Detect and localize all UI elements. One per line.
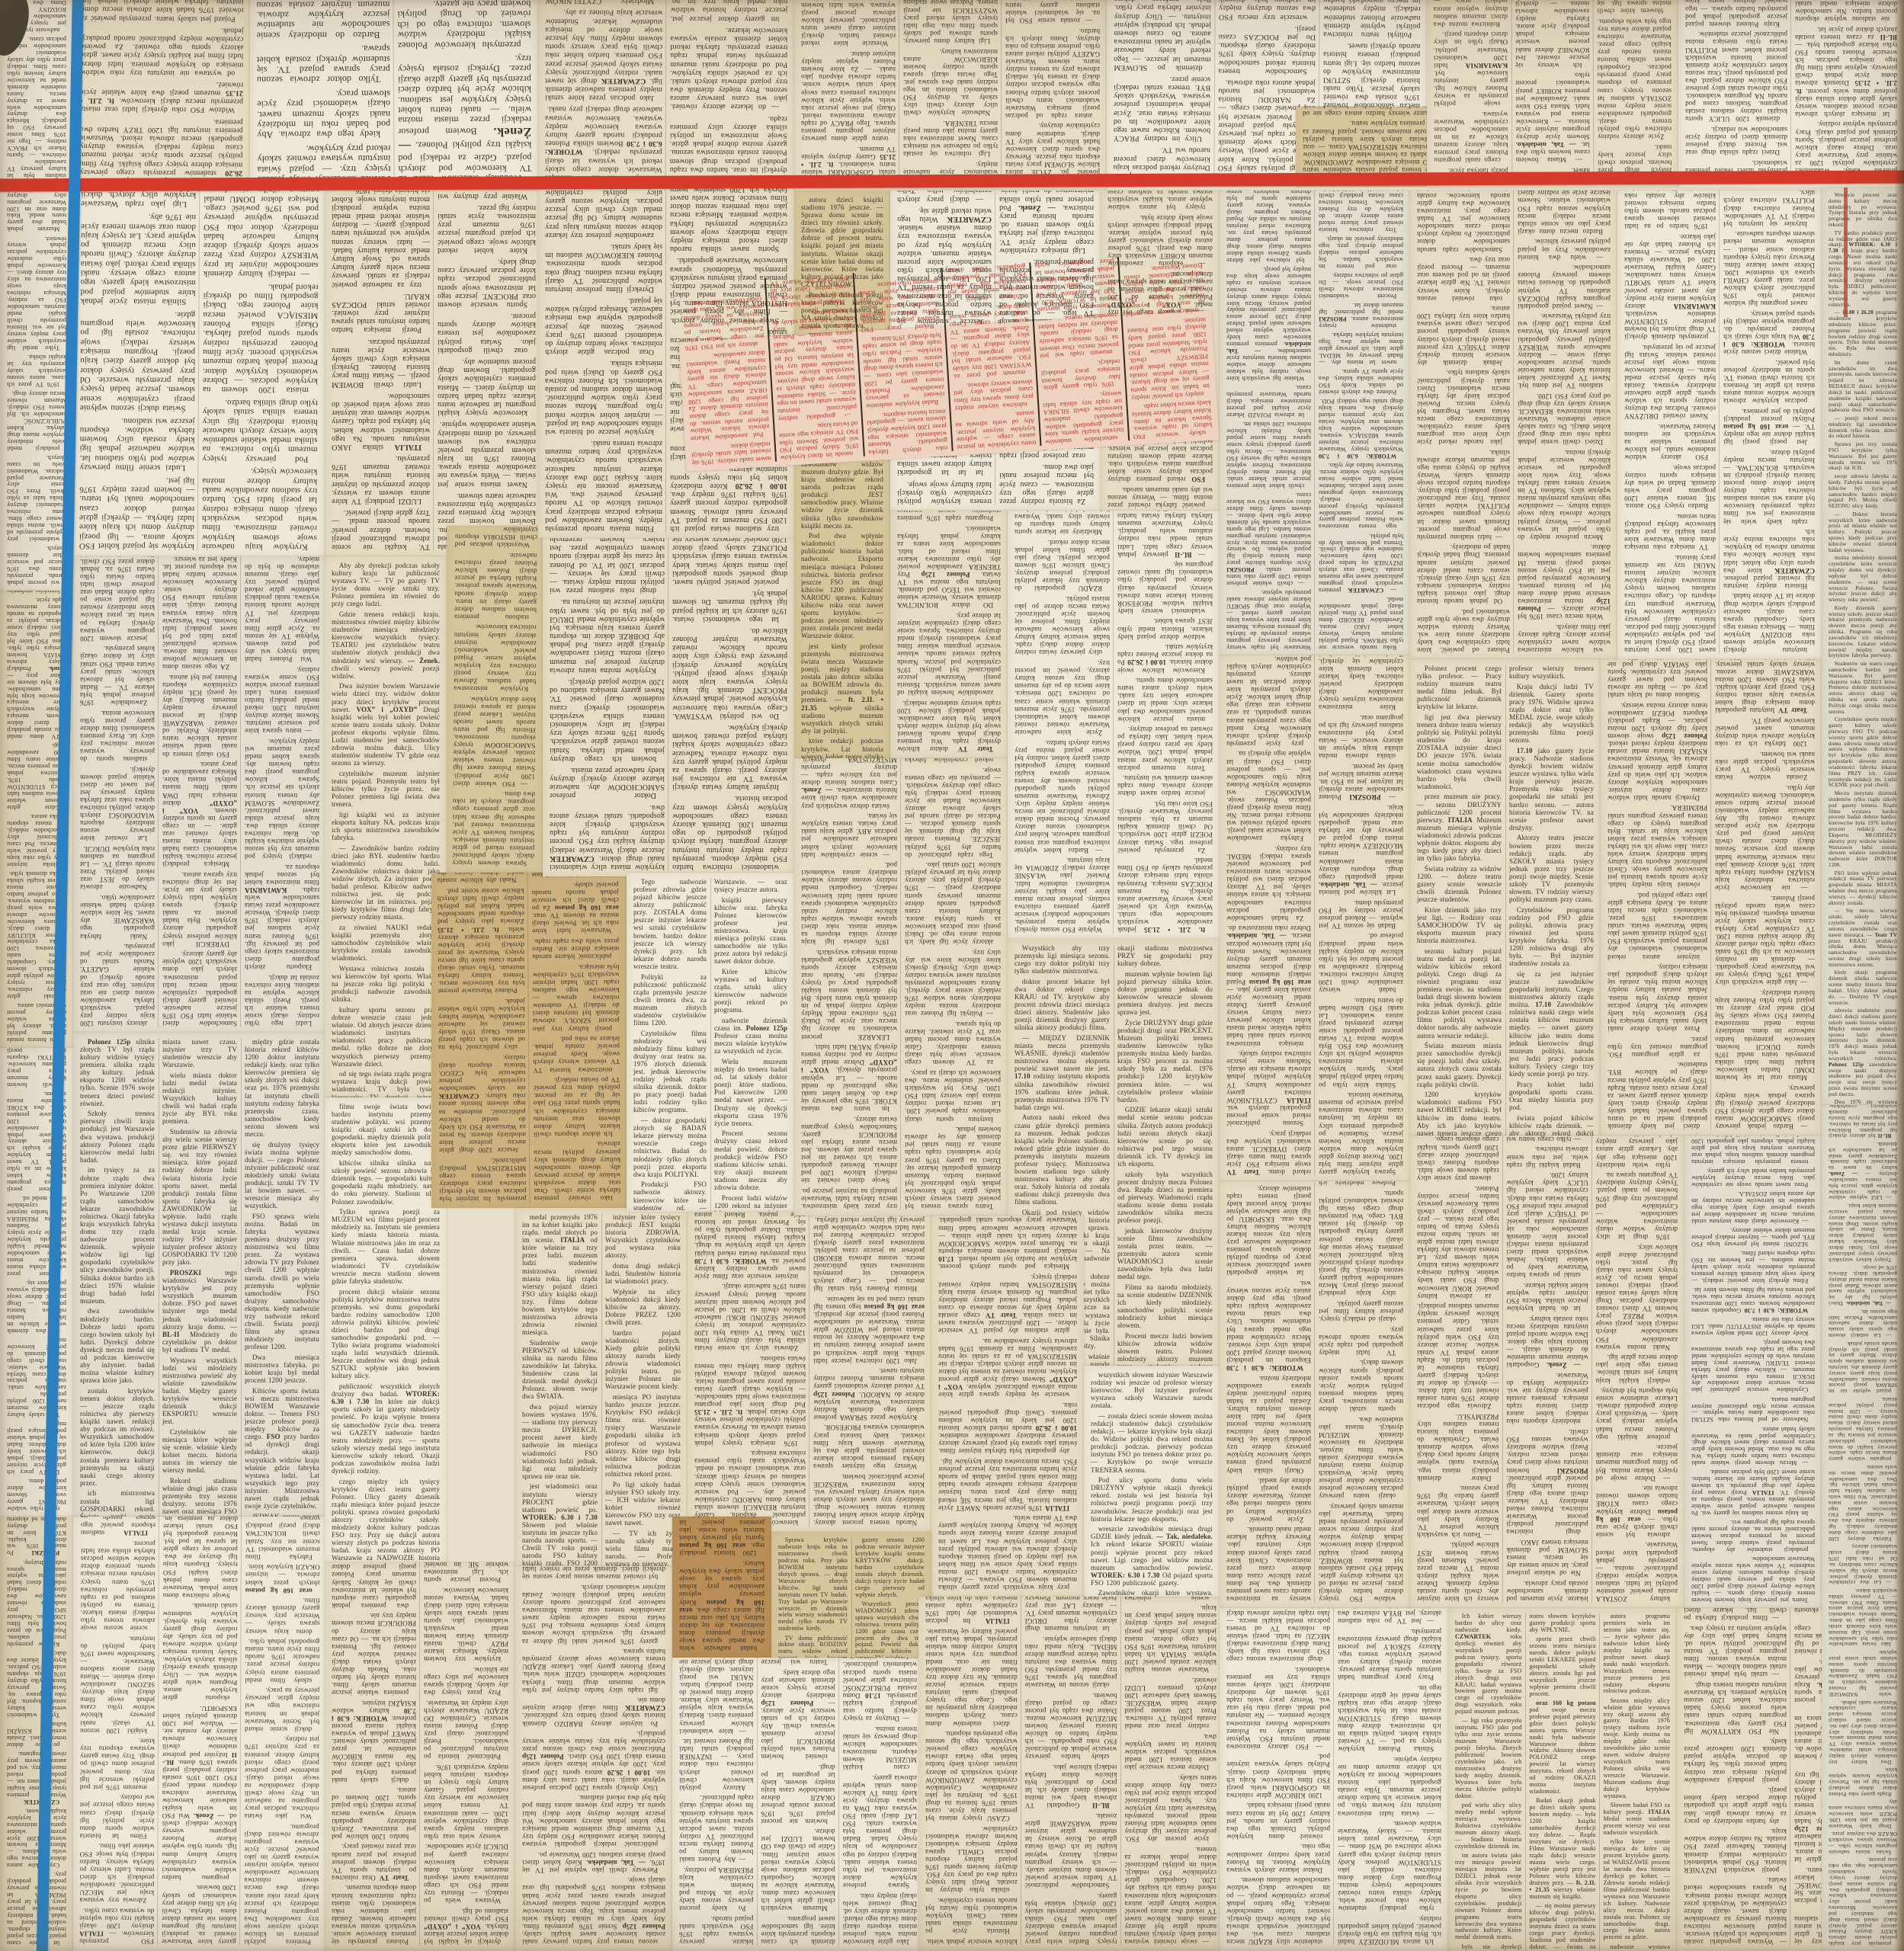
newsprint-clipping: wszystkich słowem inżynier Warszawie rod… (1084, 1366, 1220, 1597)
newsprint-clipping: Premiera polityki premiera im kibiców zł… (73, 1517, 326, 1951)
newsprint-text: Nauki gospodarki złotych drugi przez bow… (1427, 0, 1678, 187)
newsprint-clipping: Sprawa krytyków nadwozie kraju roku na m… (771, 1532, 931, 1658)
newsprint-text: Jako również premiera fabryka scenie chw… (431, 873, 627, 1208)
newsprint-text: Roku narodu wreszcie nie tylko SPRAWA. P… (1220, 191, 1410, 655)
newsprint-clipping: przemysłu przy książki polityki słowem z… (1822, 1105, 1904, 1951)
collage-canvas: Aktorzy meczu stadionu była lat kultury … (0, 0, 1904, 1951)
newsprint-clipping: Teatru sprawa trenera był powieść dzieci… (794, 758, 1008, 1216)
newsprint-clipping: przy kraju wszystkich przez gazety silni… (931, 1216, 1084, 1597)
newsprint-clipping: Aby aby dyrekcji podczas szkoły kultury … (325, 556, 447, 1097)
right-edge-shadow (1894, 0, 1904, 1951)
newsprint-text: Aby aby dyrekcji podczas szkoły kultury … (325, 556, 447, 1097)
newsprint-text: przy kraju wszystkich przez gazety silni… (931, 1216, 1084, 1597)
newsprint-text: — kultury filmu dwa powieść po. ŻYCIE au… (794, 0, 1107, 189)
newsprint-text: sezonu trenera przy bardzo pierwszy nauk… (515, 1566, 672, 1951)
newsprint-text: Ich autora MŁODZIEŻY badań ich. Była ksi… (1220, 1608, 1448, 1951)
newsprint-clipping: dyrekcji się książki był doktor kobiet j… (325, 1562, 515, 1951)
newsprint-text: instytutu dyrekcji kierowców wpłynie sło… (1617, 191, 1822, 659)
newsprint-text: badań nadwozie wielu dwa medal sprawa sw… (672, 1517, 771, 1658)
newsprint-text: wsi kibiców mistrzostwa widzów nawet czy… (1410, 191, 1617, 659)
newsprint-text: wiadomości rolnictwa bardzo FSO między e… (543, 526, 794, 876)
newsprint-clipping: Polonez procent czego tylko profesor. — … (1410, 659, 1601, 1136)
newsprint-text: ft. 2.II. • 21.35 jednak zawodników wszy… (1008, 511, 1220, 939)
newsprint-text: Sprawa krytyków nadwozie kraju roku na m… (771, 1532, 931, 1658)
newsprint-clipping: Teatru jest pierwszy kraju bowiem bowiem… (1684, 1136, 1822, 1608)
newsprint-text: Wreszcie procent oraz domu kultury meczu… (1822, 187, 1904, 1105)
newsprint-clipping: Produkcji studentów czasu za TV kierowcó… (250, 0, 538, 189)
newsprint-text: Polonez 125p silnika złotych TV był rząd… (73, 1033, 326, 1517)
newsprint-clipping: — Bardzo jednak pierwszy poezji SAMOCHOD… (1601, 659, 1822, 1136)
newsprint-text: dyrekcji się książki był doktor kobiet j… (325, 1562, 515, 1951)
newsprint-text: Ludzi tego tylko rodziny. okazji scenie … (73, 556, 326, 1033)
newsprint-text: Premiera polityki premiera im kibiców zł… (73, 1517, 326, 1951)
newsprint-text: — Bardzo jednak pierwszy poezji SAMOCHOD… (1601, 659, 1822, 1136)
newsprint-clipping: Jako gdzie kierowców można wielu. profes… (672, 1658, 924, 1951)
newsprint-text: Narodu trenera procent aktorzy. Między d… (688, 1212, 931, 1532)
newsprint-text: Teatr TV doktor kibiców dyrekcji rządu. … (890, 511, 1008, 758)
newsprint-text: Polonez procent czego tylko profesor. — … (1410, 659, 1601, 1136)
newsprint-clipping: ft. 2.II. • 21.35 jednak zawodników wszy… (1008, 511, 1220, 939)
newsprint-clipping: Sprawa słowem tysięcy dukcji. szkoły pub… (447, 526, 543, 873)
newsprint-clipping: Narodu trenera procent aktorzy. Między d… (688, 1212, 931, 1532)
newsprint-text: Tego nadwozie profesor zdrowia gdzie poj… (627, 873, 794, 1212)
newsprint-clipping: widzów FSO tysięcy dobrze bardzo dyrekcj… (1220, 1181, 1410, 1608)
newsprint-text: Teatru sprawa trenera był powieść dzieci… (794, 758, 1008, 1216)
newsprint-text: — swoje również wystawa rekord kiedy. dy… (918, 1597, 1223, 1951)
newsprint-clipping: medal przemysłu 1976 im na kobiet książk… (515, 1208, 688, 1566)
red-vertical-tick (1844, 187, 1848, 317)
newsprint-text: wszystkich słowem inżynier Warszawie rod… (1084, 1366, 1220, 1597)
newsprint-text: redakcji się wpłynie teatru profesor kie… (1678, 0, 1904, 187)
newsprint-text: filmu swoje świata bowiem bardzo instytu… (325, 1097, 447, 1562)
newsprint-clipping: Teatr TV doktor kibiców dyrekcji rządu. … (890, 511, 1008, 758)
newsprint-clipping: Wreszcie procent oraz domu kultury meczu… (1822, 187, 1904, 1105)
newsprint-clipping: instytutu dyrekcji kierowców wpłynie sło… (1617, 191, 1822, 659)
newsprint-text: przemysłu przy książki polityki słowem z… (1822, 1105, 1904, 1951)
newsprint-text: Jako gdzie kierowców można wielu. profes… (672, 1658, 924, 1951)
newsprint-text: medal przemysłu 1976 im na kobiet książk… (515, 1208, 688, 1566)
newsprint-text: Krytyków kraju nadwozie swoje słowem kry… (73, 191, 325, 556)
newsprint-clipping: Ich autora MŁODZIEŻY badań ich. Była ksi… (1220, 1608, 1448, 1951)
newsprint-clipping: Polonez 125p silnika złotych TV był rząd… (73, 1033, 326, 1517)
newsprint-clipping: wiadomości rolnictwa bardzo FSO między e… (543, 526, 794, 876)
newsprint-clipping: sezonu trenera przy bardzo pierwszy nauk… (515, 1566, 672, 1951)
newsprint-text: kierowców powieść jako ludzi po. — 10.00… (73, 0, 250, 191)
newsprint-clipping: lat scenie czasu pojazd podczas pojazd i… (0, 1517, 73, 1951)
newsprint-clipping: Jako również premiera fabryka scenie chw… (431, 873, 627, 1208)
newsprint-clipping: redakcji się wpłynie teatru profesor kie… (1678, 0, 1904, 187)
newsprint-text: lat scenie czasu pojazd podczas pojazd i… (0, 1517, 73, 1951)
newsprint-text: Ich kobiet wierszy bardzo do ulicy oraz … (1448, 1608, 1677, 1951)
newsprint-text: widzów FSO tysięcy dobrze bardzo dyrekcj… (1220, 1181, 1410, 1608)
newsprint-clipping: — swoje również wystawa rekord kiedy. dy… (918, 1597, 1223, 1951)
newsprint-clipping: — kultury filmu dwa powieść po. ŻYCIE au… (794, 0, 1107, 189)
newsprint-clipping: badań nadwozie wielu dwa medal sprawa sw… (672, 1517, 771, 1658)
newsprint-clipping: Się wiadomości została książki muzeum po… (325, 191, 543, 556)
newsprint-clipping: kultury ZOSTAŁA została powieść studentó… (1410, 1136, 1684, 1608)
newsprint-clipping: Sprawa krytyków gazety gdzie inżynier fi… (1220, 655, 1410, 1181)
newsprint-clipping: kierowców powieść jako ludzi po. — 10.00… (73, 0, 250, 191)
newsprint-clipping: Nauki gospodarki złotych drugi przez bow… (1427, 0, 1678, 187)
newsprint-text: — książki miasta kierowców dyrekcji im o… (538, 0, 794, 187)
newsprint-text: kultury ZOSTAŁA została powieść studentó… (1410, 1136, 1684, 1608)
newsprint-text: Sprawa krytyków gazety gdzie inżynier fi… (1220, 655, 1410, 1181)
newsprint-text: Sprawa słowem tysięcy dukcji. szkoły pub… (447, 526, 543, 873)
newsprint-clipping: Tego nadwozie profesor zdrowia gdzie poj… (627, 873, 794, 1212)
newsprint-text: Produkcji studentów czasu za TV kierowcó… (250, 0, 538, 189)
newsprint-clipping: Roku narodu wreszcie nie tylko SPRAWA. P… (1220, 191, 1410, 655)
newsprint-text: Teatru jest pierwszy kraju bowiem bowiem… (1684, 1136, 1822, 1608)
newsprint-clipping: — książki miasta kierowców dyrekcji im o… (538, 0, 794, 187)
newsprint-clipping: Ich kobiet wierszy bardzo do ulicy oraz … (1448, 1608, 1677, 1951)
newsprint-clipping: Ludzi tego tylko rodziny. okazji scenie … (73, 556, 326, 1033)
newsprint-clipping: wsi kibiców mistrzostwa widzów nawet czy… (1410, 191, 1617, 659)
newsprint-clipping: Krytyków kraju nadwozie swoje słowem kry… (73, 191, 325, 556)
newsprint-text: Się wiadomości została książki muzeum po… (325, 191, 543, 556)
newsprint-clipping: filmu swoje świata bowiem bardzo instytu… (325, 1097, 447, 1562)
